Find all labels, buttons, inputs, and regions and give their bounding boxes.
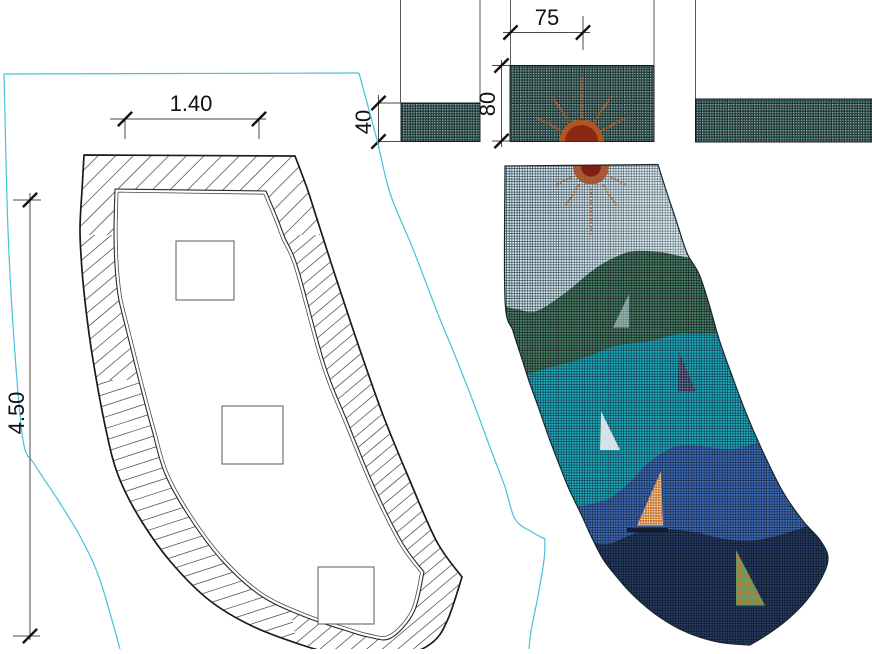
svg-text:1.40: 1.40 — [170, 91, 213, 116]
svg-text:75: 75 — [535, 5, 559, 30]
svg-text:80: 80 — [475, 92, 500, 116]
svg-text:4.50: 4.50 — [4, 392, 29, 435]
